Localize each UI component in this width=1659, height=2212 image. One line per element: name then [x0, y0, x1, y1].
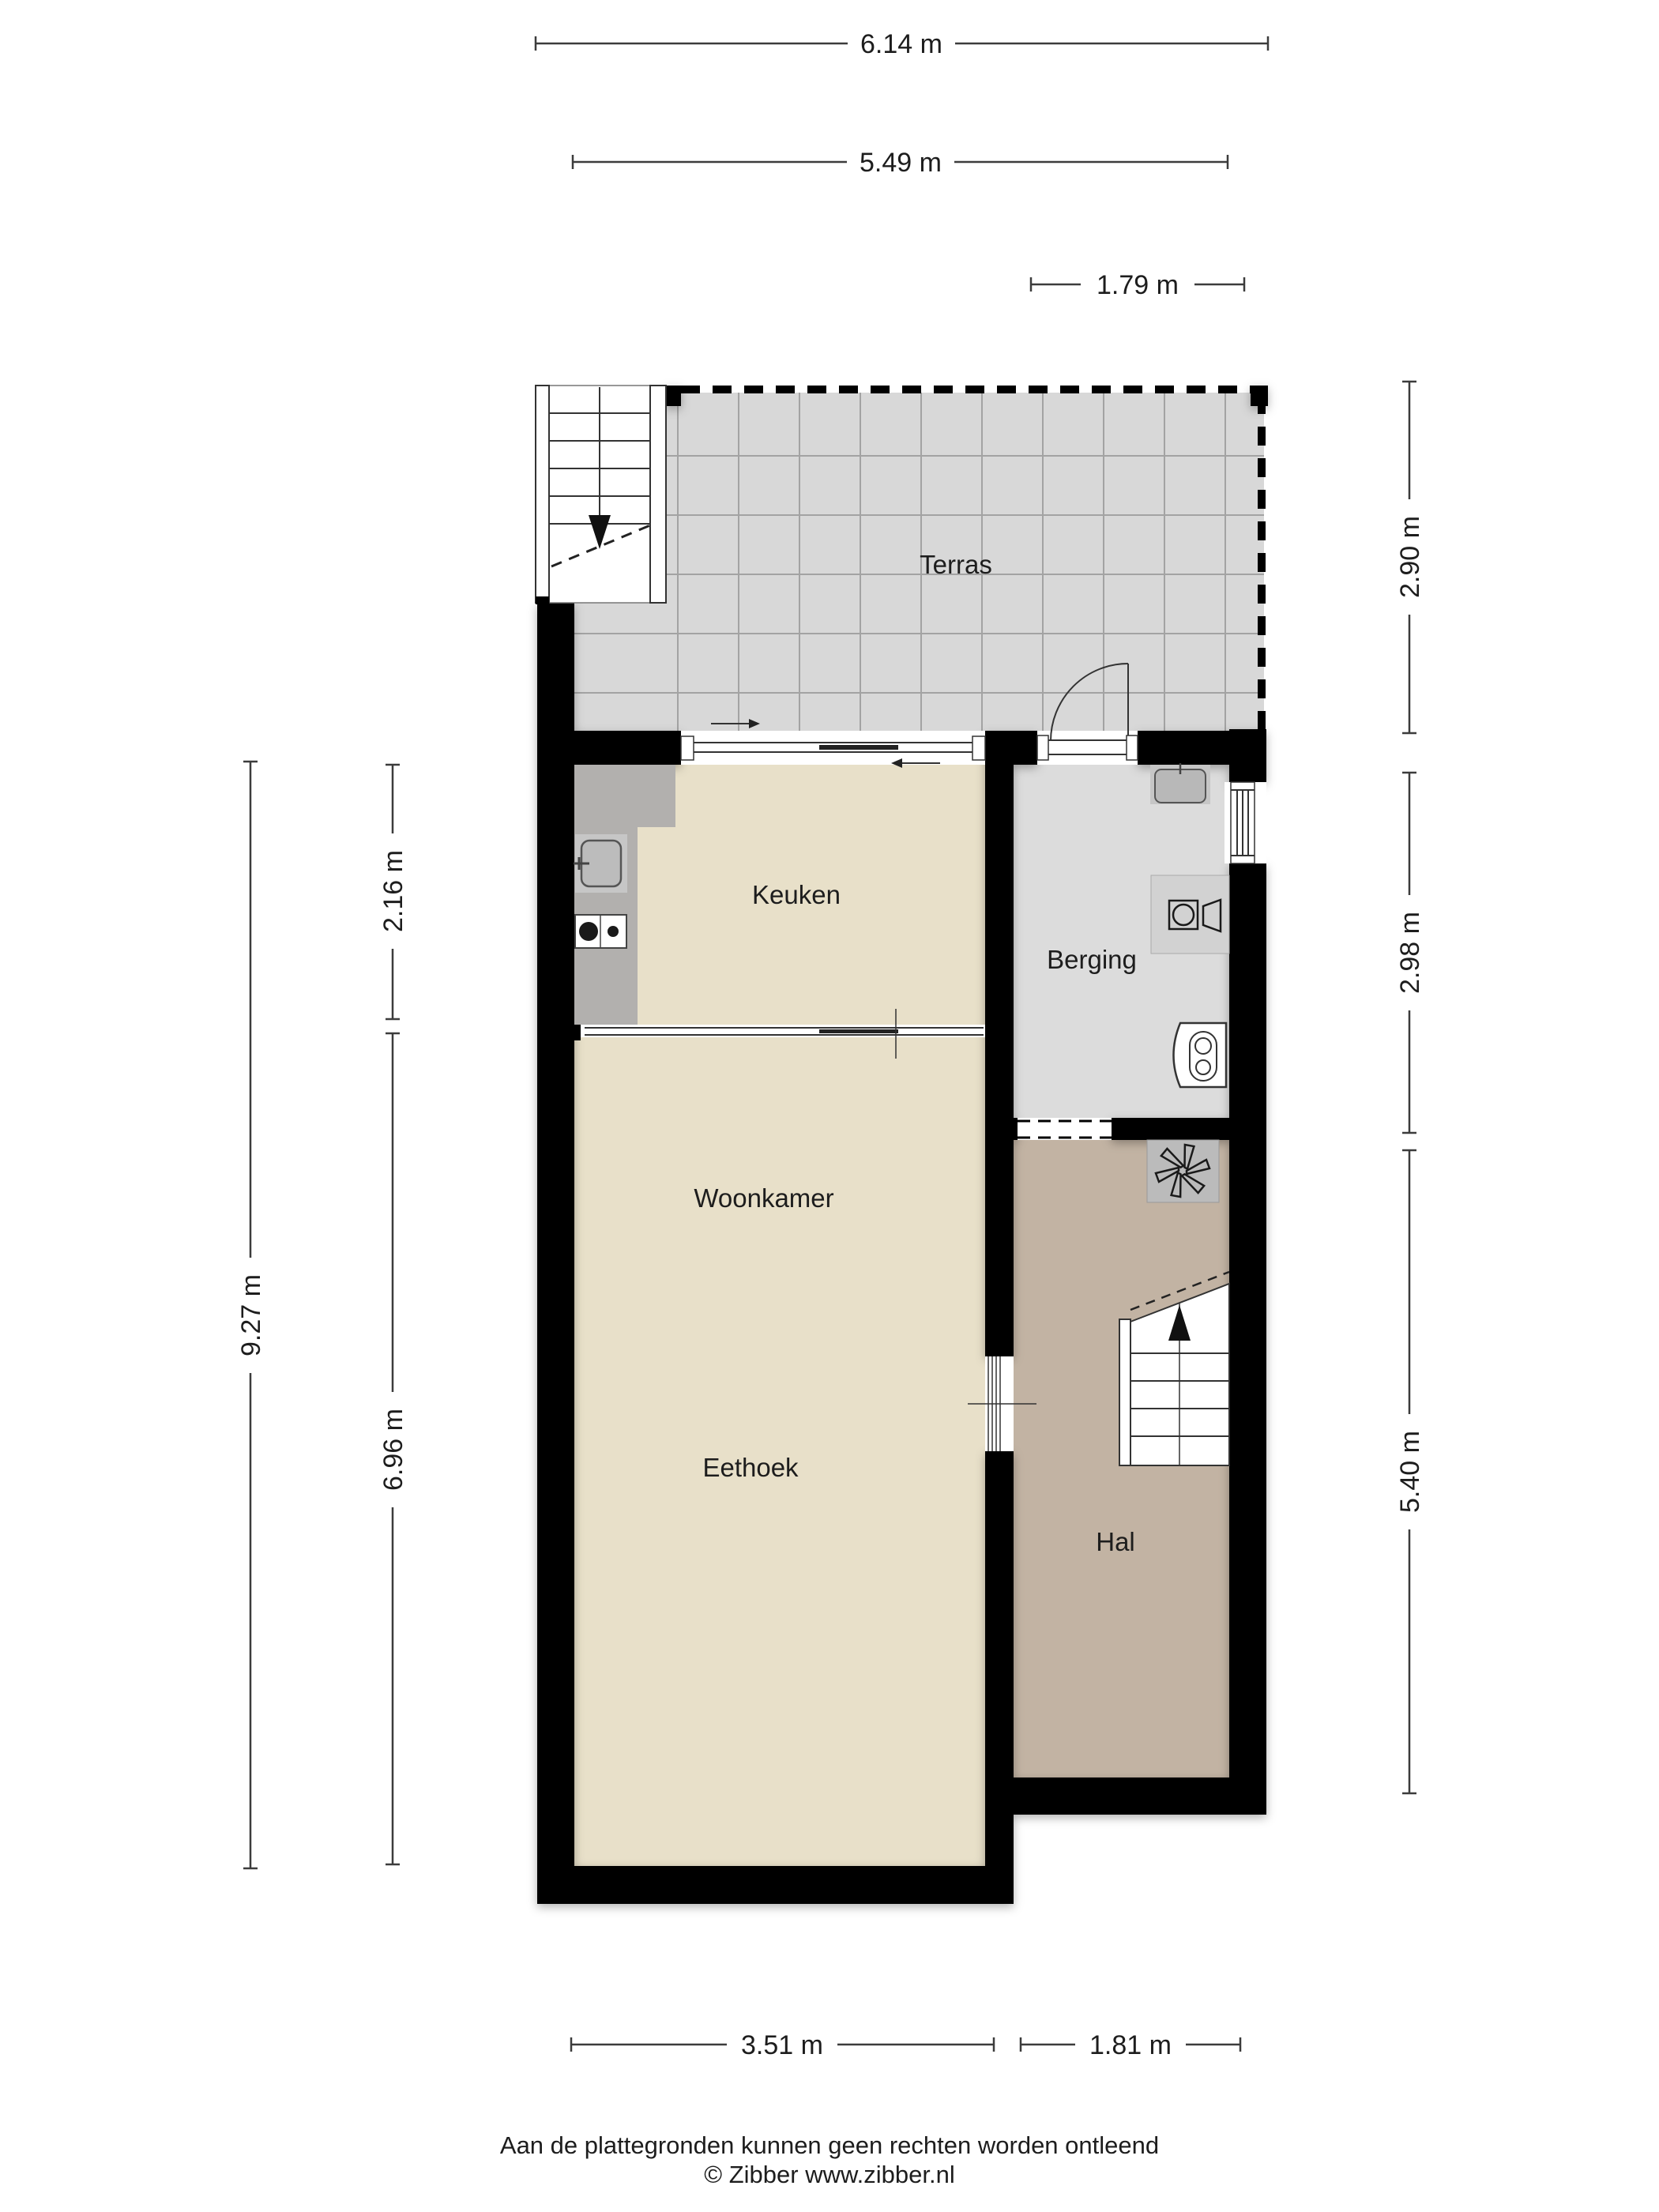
dim-berging-height: 2.98 m: [1395, 773, 1425, 1133]
room-label-eethoek: Eethoek: [702, 1453, 799, 1482]
dim-berging-width-top: 1.79 m: [1031, 270, 1244, 300]
dim-total-width: 6.14 m: [536, 29, 1268, 59]
woonkamer-eethoek-floor: [574, 1037, 985, 1866]
footer-copyright: © Zibber www.zibber.nl: [0, 2161, 1659, 2189]
svg-text:1.81 m: 1.81 m: [1089, 2030, 1172, 2060]
room-label-berging: Berging: [1047, 945, 1137, 974]
footer-disclaimer: Aan de plattegronden kunnen geen rechten…: [0, 2131, 1659, 2160]
washing-machine-icon: [1151, 875, 1229, 954]
dim-eethoek-width: 3.51 m: [571, 2030, 994, 2060]
svg-text:1.79 m: 1.79 m: [1097, 270, 1179, 300]
ventilation-fan-icon: [1147, 1140, 1219, 1202]
room-label-woonkamer: Woonkamer: [694, 1183, 833, 1213]
dim-hal-width: 1.81 m: [1021, 2030, 1240, 2060]
room-label-hal: Hal: [1096, 1527, 1135, 1556]
svg-text:6.14 m: 6.14 m: [860, 29, 942, 59]
svg-text:6.96 m: 6.96 m: [378, 1409, 408, 1491]
boiler-icon: [1174, 1023, 1227, 1087]
outdoor-stairs: [536, 386, 666, 604]
berging-sink-icon: [1150, 763, 1210, 804]
dim-hal-height: 5.40 m: [1395, 1150, 1425, 1793]
svg-text:2.90 m: 2.90 m: [1395, 516, 1425, 598]
svg-text:3.51 m: 3.51 m: [741, 2030, 823, 2060]
svg-text:2.98 m: 2.98 m: [1395, 912, 1425, 994]
svg-text:2.16 m: 2.16 m: [378, 850, 408, 932]
dim-terras-height: 2.90 m: [1395, 382, 1425, 733]
dim-woonkamer-height: 6.96 m: [378, 1033, 408, 1864]
dim-keuken-height: 2.16 m: [378, 765, 408, 1019]
berging-window: [1224, 782, 1266, 863]
stove-icon: [575, 915, 626, 948]
dim-left-total-height: 9.27 m: [236, 762, 266, 1868]
svg-text:9.27 m: 9.27 m: [236, 1274, 266, 1356]
svg-text:5.40 m: 5.40 m: [1395, 1431, 1425, 1513]
room-label-keuken: Keuken: [752, 880, 841, 909]
floor-plan: Terras Keuken Berging Woonkamer Eethoek …: [0, 0, 1659, 2212]
room-label-terras: Terras: [920, 550, 992, 579]
dim-inner-width: 5.49 m: [573, 148, 1228, 178]
svg-text:5.49 m: 5.49 m: [860, 148, 942, 178]
kitchen-sink-icon: [574, 834, 627, 893]
